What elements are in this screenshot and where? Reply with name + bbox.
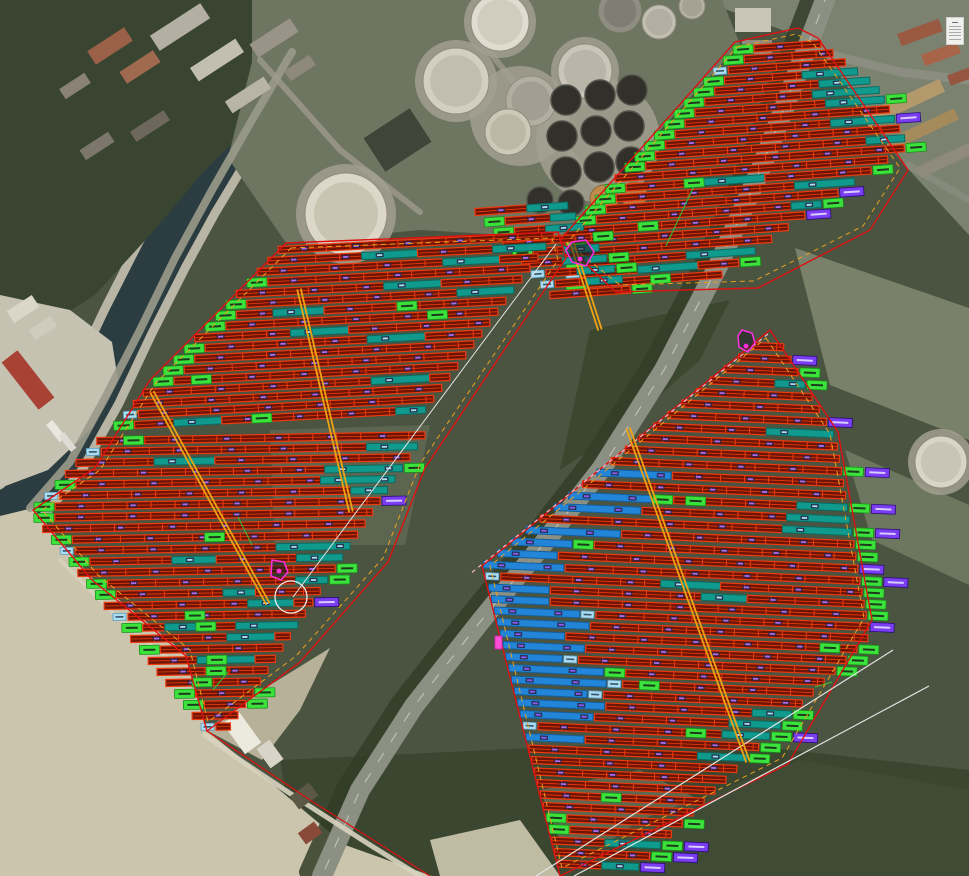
- storage-tank-roof: [921, 442, 962, 483]
- storage-tank-dark: [617, 75, 647, 105]
- layers-list-line: [949, 32, 961, 33]
- pv-row: [175, 688, 275, 699]
- storage-tank-dark: [551, 85, 581, 115]
- storage-tank-roof: [314, 182, 378, 246]
- layers-list-line: [949, 39, 961, 40]
- storage-tank-roof: [490, 114, 526, 150]
- storage-tank-roof: [477, 0, 522, 45]
- storage-tank-dark: [614, 111, 644, 141]
- storage-tank-dark: [547, 121, 577, 151]
- storage-tank-dark: [581, 116, 611, 146]
- layers-list-icon[interactable]: [946, 17, 964, 45]
- storage-tank-dark: [585, 80, 615, 110]
- storage-tank-roof: [430, 55, 481, 106]
- storage-tank-roof: [646, 9, 673, 36]
- layers-list-line: [949, 26, 961, 27]
- scene-svg: [0, 0, 969, 876]
- layers-list-line: [952, 22, 959, 23]
- satellite-canvas: [0, 0, 969, 876]
- storage-tank-dark: [584, 152, 614, 182]
- building: [735, 8, 771, 32]
- storage-tank-dark: [551, 157, 581, 187]
- station-marker-small: [495, 636, 502, 649]
- layers-list-line: [949, 35, 961, 36]
- layers-list-line: [949, 29, 961, 30]
- pv-row: [183, 699, 267, 709]
